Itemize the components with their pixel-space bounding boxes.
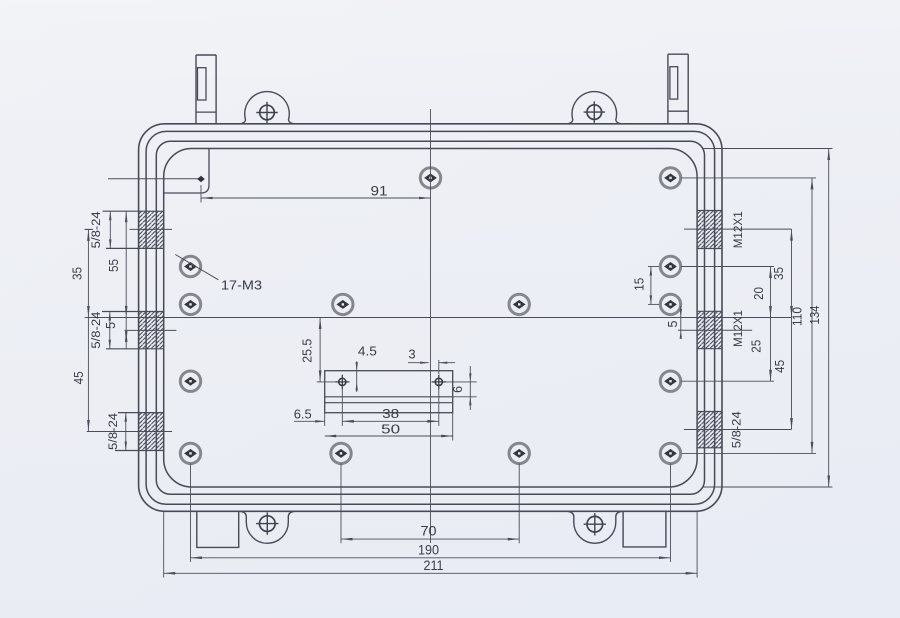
svg-text:5: 5 (104, 322, 118, 329)
svg-text:5: 5 (666, 320, 680, 327)
svg-text:6.5: 6.5 (294, 407, 312, 422)
svg-text:45: 45 (72, 371, 86, 384)
svg-text:M12X1: M12X1 (733, 310, 745, 347)
svg-text:5/8-24: 5/8-24 (91, 311, 103, 349)
svg-text:3: 3 (408, 347, 415, 362)
svg-text:5/8-24: 5/8-24 (91, 211, 103, 249)
svg-text:50: 50 (381, 422, 400, 437)
svg-text:35: 35 (70, 267, 84, 280)
svg-text:45: 45 (773, 360, 787, 373)
svg-text:134: 134 (808, 305, 822, 324)
svg-text:15: 15 (633, 278, 647, 291)
svg-text:110: 110 (791, 307, 805, 326)
svg-text:17-M3: 17-M3 (221, 278, 262, 293)
svg-text:5/8-24: 5/8-24 (732, 411, 744, 449)
svg-text:190: 190 (418, 542, 439, 558)
svg-text:38: 38 (382, 406, 399, 421)
svg-text:25.5: 25.5 (301, 339, 315, 363)
svg-text:35: 35 (772, 267, 786, 280)
svg-text:211: 211 (424, 557, 444, 573)
svg-text:6: 6 (451, 386, 465, 393)
svg-text:5/8-24: 5/8-24 (108, 412, 120, 450)
svg-text:4.5: 4.5 (358, 344, 377, 359)
svg-text:91: 91 (371, 183, 388, 199)
svg-text:20: 20 (752, 287, 766, 300)
svg-text:70: 70 (421, 523, 437, 539)
svg-text:25: 25 (750, 340, 764, 353)
svg-text:M12X1: M12X1 (733, 211, 745, 248)
svg-text:55: 55 (107, 259, 121, 272)
